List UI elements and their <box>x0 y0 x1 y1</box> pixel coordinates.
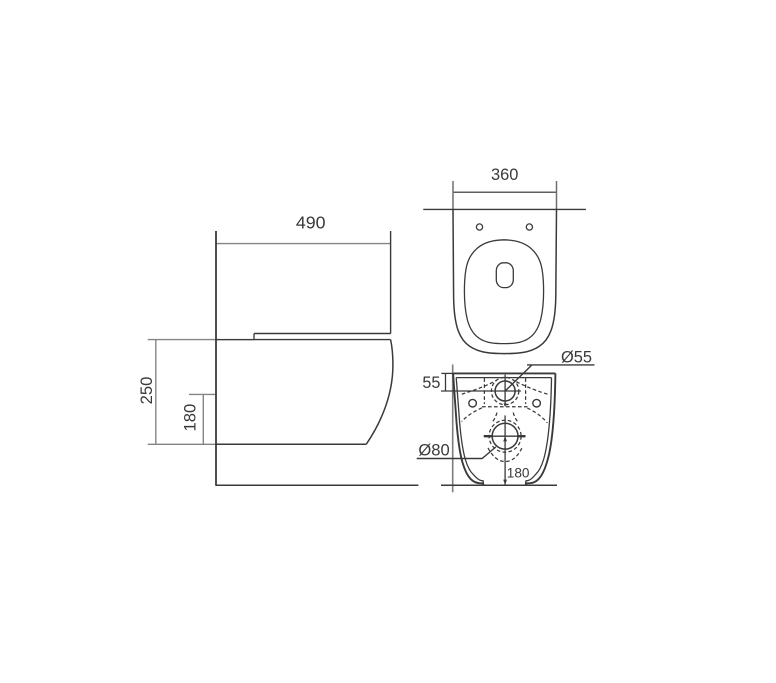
svg-text:180: 180 <box>507 466 530 481</box>
svg-text:180: 180 <box>181 404 200 432</box>
svg-text:Ø55: Ø55 <box>561 348 592 366</box>
svg-text:360: 360 <box>491 166 518 184</box>
svg-text:Ø80: Ø80 <box>418 440 449 459</box>
svg-text:490: 490 <box>296 213 326 233</box>
svg-text:55: 55 <box>422 374 440 392</box>
svg-text:250: 250 <box>137 377 156 405</box>
